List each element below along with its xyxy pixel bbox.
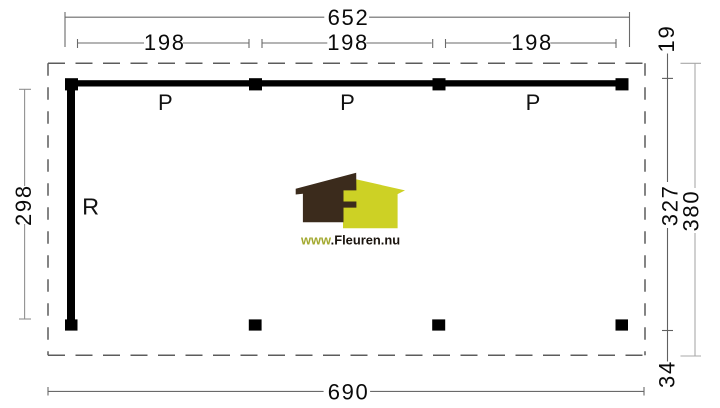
- svg-text:www.Fleuren.nu: www.Fleuren.nu: [300, 232, 400, 247]
- svg-text:198: 198: [144, 30, 186, 55]
- svg-text:P: P: [340, 90, 355, 115]
- svg-text:34: 34: [655, 360, 680, 388]
- svg-text:298: 298: [11, 184, 36, 226]
- svg-text:198: 198: [511, 30, 553, 55]
- svg-text:P: P: [158, 90, 173, 115]
- svg-text:380: 380: [679, 190, 704, 232]
- svg-text:198: 198: [327, 30, 369, 55]
- svg-text:652: 652: [328, 5, 370, 30]
- svg-text:R: R: [82, 193, 99, 219]
- svg-text:19: 19: [654, 25, 679, 53]
- svg-text:P: P: [526, 90, 541, 115]
- svg-text:690: 690: [328, 379, 370, 404]
